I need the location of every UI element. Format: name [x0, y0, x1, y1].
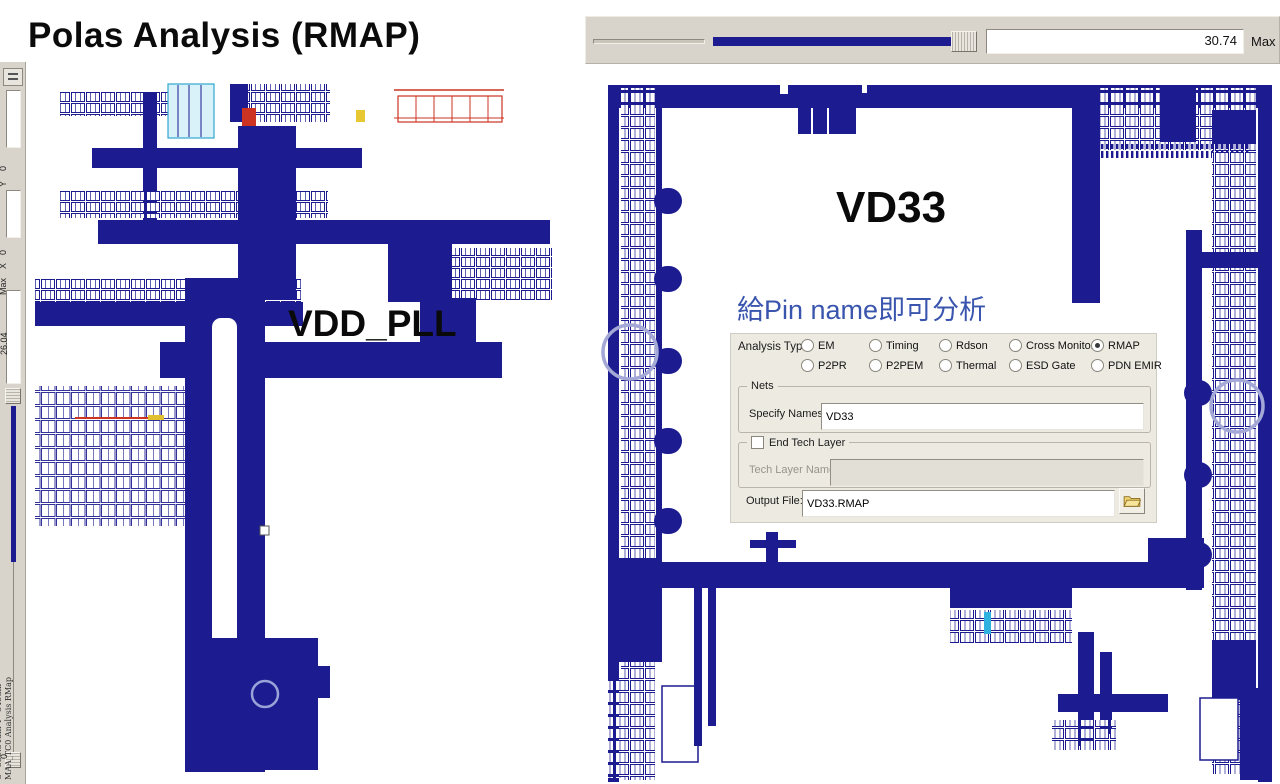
scale-value-field[interactable]: 30.74 [986, 29, 1244, 54]
end-tech-layer-checkbox[interactable] [751, 436, 764, 449]
x-label: X [0, 263, 8, 269]
output-file-input[interactable] [802, 490, 1115, 517]
radio-label: Thermal [956, 360, 996, 372]
slider-fill [713, 37, 953, 46]
radio-circle [1091, 339, 1104, 352]
nets-group-label: Nets [747, 380, 778, 392]
radio-circle [1009, 339, 1022, 352]
radio-circle [1009, 359, 1022, 372]
left-layout-viewer: 0 Y 0 X Max 26.04 0 MAA_TC0 Analysis RMa… [0, 0, 560, 784]
analysis-dialog: Analysis Type EM Timing Rdson Cross Moni… [730, 333, 1157, 523]
radio-label: P2PR [818, 360, 847, 372]
left-toolbar: 0 Y 0 X Max 26.04 0 [0, 62, 26, 784]
radio-circle [1091, 359, 1104, 372]
status-line-1: MAA_TC0 Analysis RMap [5, 677, 13, 780]
radio-circle [869, 359, 882, 372]
tool-icon-button[interactable] [3, 68, 23, 86]
radio-thermal[interactable]: Thermal [939, 359, 996, 372]
right-layout-viewer: 30.74 Max [585, 0, 1280, 784]
radio-label: PDN EMIR [1108, 360, 1162, 372]
radio-rmap[interactable]: RMAP [1091, 339, 1140, 352]
radio-circle [801, 339, 814, 352]
slider-groove[interactable] [593, 39, 705, 44]
output-file-label: Output File: [746, 495, 803, 507]
radio-circle [869, 339, 882, 352]
slider-track [13, 562, 14, 752]
radio-label: RMAP [1108, 340, 1140, 352]
page-root: Polas Analysis (RMAP) 0 Y 0 X Max 26.04 [0, 0, 1280, 784]
radio-timing[interactable]: Timing [869, 339, 919, 352]
radio-label: Cross Monitor [1026, 340, 1094, 352]
slider-fill [11, 406, 16, 562]
radio-label: EM [818, 340, 835, 352]
x-readout-field[interactable] [6, 190, 21, 238]
radio-pdn-emir[interactable]: PDN EMIR [1091, 359, 1162, 372]
nets-group: Nets Specify Names: [738, 386, 1151, 433]
right-toolbar: 30.74 Max [585, 16, 1280, 64]
y-label: Y [0, 181, 8, 187]
slider-handle[interactable] [951, 31, 977, 52]
net-label-vd33: VD33 [836, 183, 946, 233]
radio-label: Rdson [956, 340, 988, 352]
radio-circle [939, 359, 952, 372]
radio-em[interactable]: EM [801, 339, 835, 352]
radio-p2pr[interactable]: P2PR [801, 359, 847, 372]
end-tech-layer-group: End Tech Layer Tech Layer Name: [738, 442, 1151, 488]
folder-open-icon [1123, 494, 1141, 508]
left-layout-canvas[interactable] [26, 70, 560, 784]
radio-label: ESD Gate [1026, 360, 1076, 372]
status-line-2: C=556.34um Y=345um [0, 684, 3, 780]
net-label-vdd-pll: VDD_PLL [288, 303, 457, 345]
y-readout-field[interactable] [6, 90, 21, 148]
tech-layer-name-label: Tech Layer Name: [749, 464, 838, 476]
specify-names-input[interactable] [821, 403, 1144, 430]
y-value: 0 [0, 166, 8, 171]
analysis-type-label: Analysis Type [738, 341, 809, 353]
max-value: 26.04 [0, 332, 9, 355]
radio-p2pem[interactable]: P2PEM [869, 359, 923, 372]
x-value: 0 [0, 250, 8, 255]
browse-folder-button[interactable] [1119, 488, 1145, 514]
specify-names-label: Specify Names: [749, 408, 826, 420]
scale-max-label: Max [1251, 34, 1276, 49]
tech-layer-name-input[interactable] [830, 459, 1144, 486]
radio-label: P2PEM [886, 360, 923, 372]
radio-circle [939, 339, 952, 352]
radio-label: Timing [886, 340, 919, 352]
tool-icon [8, 73, 18, 75]
slider-handle[interactable] [5, 388, 21, 404]
annotation-text: 給Pin name即可分析 [737, 288, 986, 327]
radio-rdson[interactable]: Rdson [939, 339, 988, 352]
end-tech-layer-label: End Tech Layer [769, 437, 845, 449]
radio-circle [801, 359, 814, 372]
radio-cross-monitor[interactable]: Cross Monitor [1009, 339, 1094, 352]
radio-esd-gate[interactable]: ESD Gate [1009, 359, 1076, 372]
